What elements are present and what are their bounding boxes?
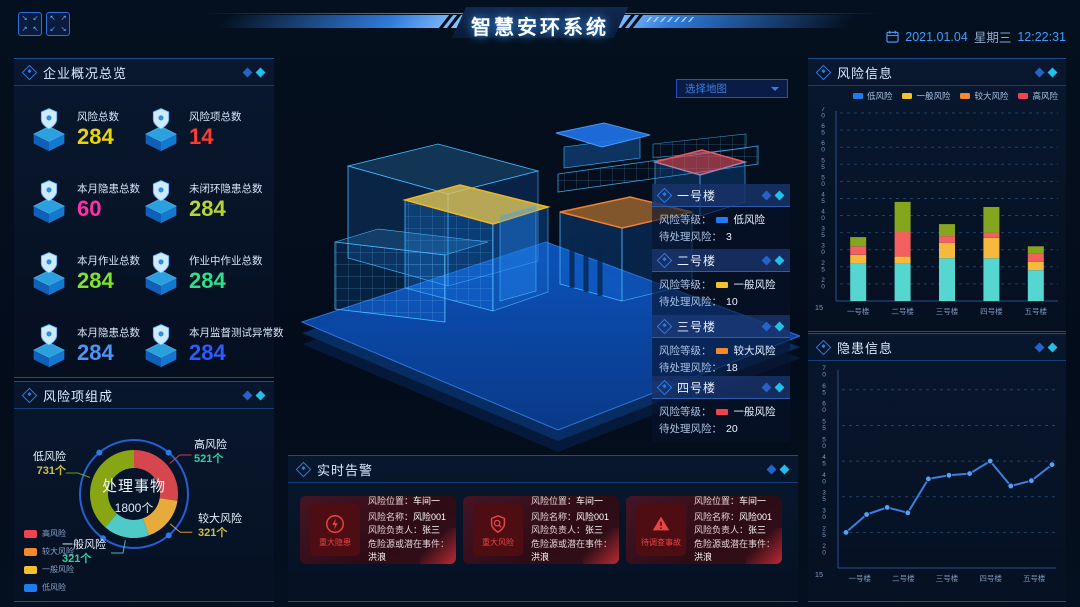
- risk-level-label: 风险等级：: [659, 277, 712, 292]
- stat-value: 284: [189, 270, 263, 292]
- svg-text:20: 20: [821, 277, 825, 291]
- pending-risk-label: 待处理风险：: [659, 421, 722, 436]
- building-card-1[interactable]: 一号楼 风险等级：低风险 待处理风险：3: [652, 184, 790, 250]
- building-card-body: 风险等级：较大风险 待处理风险：18: [652, 338, 790, 381]
- stat-card: 风险总数284: [28, 98, 140, 159]
- stat-card: 作业中作业总数284: [140, 242, 284, 303]
- panel-header: 隐患信息: [808, 334, 1066, 361]
- risk-level-swatch: [716, 348, 728, 354]
- alert-badge: 重大风险: [482, 537, 514, 548]
- legend-item[interactable]: 较大风险: [24, 546, 74, 557]
- building-card-header: 二号楼: [652, 249, 790, 272]
- svg-text:50: 50: [822, 436, 826, 450]
- panel-header: 实时告警: [288, 456, 798, 483]
- building-name: 二号楼: [677, 252, 716, 269]
- svg-text:40: 40: [821, 209, 825, 223]
- panel-title: 实时告警: [317, 460, 373, 479]
- legend-item[interactable]: 一般风险: [24, 564, 74, 575]
- svg-text:五号楼: 五号楼: [1025, 306, 1048, 316]
- diamond-icon: [657, 252, 673, 268]
- legend-swatch: [853, 93, 863, 99]
- svg-text:30: 30: [821, 243, 825, 257]
- callout-larger-risk: 较大风险 321个: [198, 512, 242, 540]
- calendar-icon: [886, 30, 899, 43]
- pending-risk-label: 待处理风险：: [659, 360, 722, 375]
- svg-text:20: 20: [822, 543, 826, 557]
- svg-text:五号楼: 五号楼: [1023, 573, 1046, 583]
- diamond-icon: [657, 379, 673, 395]
- dashboard-root: ↘↙ ↗↖ ↖↗ ↙↘ 智慧安环系统 2021.01.04 星期三 12:22:…: [0, 0, 1080, 607]
- stat-card: 未闭环隐患总数284: [140, 170, 284, 231]
- alert-icon-box: 重大隐患: [310, 504, 360, 556]
- alert-badge: 待调查事故: [641, 537, 681, 548]
- svg-text:60: 60: [822, 401, 826, 415]
- stat-value: 284: [77, 342, 140, 364]
- svg-text:四号楼: 四号楼: [979, 573, 1002, 583]
- callout-low-risk: 低风险 731个: [20, 450, 66, 478]
- building-name: 三号楼: [677, 318, 716, 335]
- svg-text:65: 65: [822, 383, 826, 397]
- panel-risk-composition: 风险项组成 处理事物 1800个 高风险 521个 低风险 731个 较大风险 …: [14, 381, 274, 602]
- building-card-header: 四号楼: [652, 376, 790, 399]
- legend-swatch: [24, 548, 37, 556]
- svg-text:一号楼: 一号楼: [847, 306, 870, 316]
- donut-center-label: 处理事物 1800个: [74, 475, 194, 516]
- header-diamonds-icon: [763, 384, 783, 391]
- cube-shield-icon: [140, 178, 182, 224]
- legend-swatch: [902, 93, 912, 99]
- legend-swatch: [24, 530, 37, 538]
- alert-badge: 重大隐患: [319, 537, 351, 548]
- svg-text:40: 40: [822, 472, 826, 486]
- stats-grid: 风险总数284 风险项总数14 本月隐患总数60 未闭环隐患总数284 本月作业…: [14, 86, 274, 375]
- panel-header: 风险信息: [808, 59, 1066, 86]
- svg-text:二号楼: 二号楼: [891, 306, 914, 316]
- stat-label: 风险项总数: [189, 109, 242, 124]
- stat-value: 14: [189, 126, 242, 148]
- map-select[interactable]: 选择地图: [676, 79, 788, 98]
- stat-label: 未闭环隐患总数: [189, 181, 263, 196]
- legend-item[interactable]: 高风险: [1018, 90, 1058, 102]
- stat-card: 本月隐患总数60: [28, 170, 140, 231]
- weekday-text: 星期三: [974, 27, 1012, 46]
- cube-shield-icon: [140, 106, 182, 152]
- risk-level-swatch: [716, 282, 728, 288]
- time-text: 12:22:31: [1017, 30, 1066, 44]
- svg-text:一号楼: 一号楼: [849, 573, 872, 583]
- diamond-icon: [657, 318, 673, 334]
- cube-shield-icon: [28, 250, 70, 296]
- building-card-body: 风险等级：一般风险 待处理风险：10: [652, 272, 790, 315]
- building-card-body: 风险等级：低风险 待处理风险：3: [652, 207, 790, 250]
- risk-stacked-bar-chart: 202530354045505560657015一号楼二号楼三号楼四号楼五号楼: [808, 107, 1066, 327]
- pending-risk-value: 3: [726, 231, 732, 243]
- svg-text:三号楼: 三号楼: [936, 306, 959, 316]
- header-diamonds-icon: [763, 257, 783, 264]
- legend-item[interactable]: 高风险: [24, 528, 74, 539]
- svg-text:50: 50: [821, 174, 825, 188]
- alert-card-1[interactable]: 重大隐患 风险位置：车间一 风险名称：风险001 风险负责人：张三 危险源或潜在…: [300, 496, 456, 564]
- svg-text:55: 55: [821, 157, 825, 171]
- stat-value: 60: [77, 198, 140, 220]
- legend-item[interactable]: 低风险: [853, 90, 893, 102]
- diamond-icon: [816, 339, 832, 355]
- panel-enterprise-overview: 企业概况总览 风险总数284 风险项总数14 本月隐患总数60 未闭环隐患总数2…: [14, 58, 274, 378]
- panel-title: 风险信息: [837, 63, 893, 82]
- building-card-body: 风险等级：一般风险 待处理风险：20: [652, 399, 790, 442]
- building-card-header: 三号楼: [652, 315, 790, 338]
- diamond-icon: [296, 461, 312, 477]
- panel-header: 企业概况总览: [14, 59, 274, 86]
- header-diamonds-icon: [1036, 344, 1056, 351]
- alert-card-2[interactable]: 重大风险 风险位置：车间一 风险名称：风险001 风险负责人：张三 危险源或潜在…: [463, 496, 619, 564]
- alert-rows: 风险位置：车间一 风险名称：风险001 风险负责人：张三 危险源或潜在事件：洪浪: [368, 496, 456, 564]
- warning-triangle-icon: [650, 513, 672, 535]
- diamond-icon: [22, 64, 38, 80]
- donut-center-title: 处理事物: [74, 475, 194, 496]
- svg-text:二号楼: 二号楼: [892, 573, 915, 583]
- stat-label: 作业中作业总数: [189, 253, 263, 268]
- header-diamonds-icon: [768, 466, 788, 473]
- svg-text:35: 35: [821, 226, 825, 240]
- header-diamonds-icon: [1036, 69, 1056, 76]
- stat-card: 本月隐患总数284: [28, 314, 140, 375]
- stat-card: 本月作业总数284: [28, 242, 140, 303]
- alert-card-3[interactable]: 待调查事故 风险位置：车间一 风险名称：风险001 风险负责人：张三 危险源或潜…: [626, 496, 782, 564]
- chevron-down-icon: [771, 87, 779, 91]
- pending-risk-label: 待处理风险：: [659, 229, 722, 244]
- danger-line-chart: 202530354045505560657015一号楼二号楼三号楼四号楼五号楼: [808, 360, 1066, 601]
- building-card-2[interactable]: 二号楼 风险等级：一般风险 待处理风险：10: [652, 249, 790, 315]
- risk-level-swatch: [716, 409, 728, 415]
- header-diamonds-icon: [763, 192, 783, 199]
- legend-item[interactable]: 低风险: [24, 582, 74, 593]
- svg-text:70: 70: [821, 107, 825, 120]
- cube-shield-icon: [140, 322, 182, 368]
- cube-shield-icon: [28, 178, 70, 224]
- svg-text:25: 25: [821, 260, 825, 274]
- risk-level-label: 风险等级：: [659, 212, 712, 227]
- date-text: 2021.01.04: [905, 30, 968, 44]
- shield-scan-icon: [487, 513, 509, 535]
- stat-label: 本月监督测试异常数: [189, 325, 284, 340]
- panel-risk-info: 风险信息 低风险 一般风险 较大风险 高风险 20253035404550556…: [808, 58, 1066, 332]
- risk-level-label: 风险等级：: [659, 343, 712, 358]
- svg-text:70: 70: [822, 365, 826, 379]
- building-card-3[interactable]: 三号楼 风险等级：较大风险 待处理风险：18: [652, 315, 790, 381]
- panel-title: 企业概况总览: [43, 63, 127, 82]
- svg-text:四号楼: 四号楼: [980, 306, 1003, 316]
- building-name: 四号楼: [677, 379, 716, 396]
- donut-legend: 高风险 较大风险 一般风险 低风险: [24, 528, 74, 593]
- svg-text:35: 35: [822, 490, 826, 504]
- stat-label: 本月隐患总数: [77, 181, 140, 196]
- alert-rows: 风险位置：车间一 风险名称：风险001 风险负责人：张三 危险源或潜在事件：洪浪: [694, 496, 782, 564]
- svg-text:25: 25: [822, 525, 826, 539]
- stat-card: 本月监督测试异常数284: [140, 314, 284, 375]
- building-card-header: 一号楼: [652, 184, 790, 207]
- legend-swatch: [1018, 93, 1028, 99]
- alert-icon-box: 待调查事故: [636, 504, 686, 556]
- datetime-bar: 2021.01.04 星期三 12:22:31: [886, 27, 1066, 46]
- legend-swatch: [960, 93, 970, 99]
- pending-risk-value: 10: [726, 296, 738, 308]
- legend-swatch: [24, 566, 37, 574]
- panel-realtime-alerts: 实时告警 重大隐患 风险位置：车间一 风险名称：风险001 风险负责人：张三 危…: [288, 455, 798, 602]
- svg-text:15: 15: [815, 303, 823, 312]
- legend-item[interactable]: 一般风险: [902, 90, 950, 102]
- header-diamonds-icon: [244, 69, 264, 76]
- stat-label: 本月作业总数: [77, 253, 140, 268]
- stat-value: 284: [189, 198, 263, 220]
- donut-center-value: 1800个: [74, 499, 194, 516]
- legend-item[interactable]: 较大风险: [960, 90, 1008, 102]
- lightning-circle-icon: [324, 513, 346, 535]
- callout-high-risk: 高风险 521个: [194, 438, 227, 466]
- panel-title: 隐患信息: [837, 338, 893, 357]
- pending-risk-value: 20: [726, 423, 738, 435]
- alert-rows: 风险位置：车间一 风险名称：风险001 风险负责人：张三 危险源或潜在事件：洪浪: [531, 496, 619, 564]
- svg-text:45: 45: [822, 454, 826, 468]
- stat-value: 284: [189, 342, 284, 364]
- map-select-value: 选择地图: [685, 81, 727, 96]
- building-card-4[interactable]: 四号楼 风险等级：一般风险 待处理风险：20: [652, 376, 790, 442]
- building-name: 一号楼: [677, 187, 716, 204]
- cube-shield-icon: [28, 106, 70, 152]
- stat-value: 284: [77, 270, 140, 292]
- svg-text:30: 30: [822, 508, 826, 522]
- pending-risk-value: 18: [726, 362, 738, 374]
- stat-label: 本月隐患总数: [77, 325, 140, 340]
- diamond-icon: [657, 187, 673, 203]
- svg-text:60: 60: [821, 140, 825, 154]
- risk-level-label: 风险等级：: [659, 404, 712, 419]
- bar-chart-legend: 低风险 一般风险 较大风险 高风险: [853, 90, 1058, 102]
- panel-danger-info: 隐患信息 202530354045505560657015一号楼二号楼三号楼四号…: [808, 333, 1066, 602]
- cube-shield-icon: [28, 322, 70, 368]
- risk-level-value: 一般风险: [734, 404, 776, 419]
- legend-swatch: [24, 584, 37, 592]
- header-diamonds-icon: [763, 323, 783, 330]
- risk-level-value: 一般风险: [734, 277, 776, 292]
- svg-text:15: 15: [815, 570, 823, 579]
- stat-value: 284: [77, 126, 119, 148]
- pending-risk-label: 待处理风险：: [659, 294, 722, 309]
- svg-text:55: 55: [822, 418, 826, 432]
- svg-text:45: 45: [821, 191, 825, 205]
- risk-level-swatch: [716, 217, 728, 223]
- diamond-icon: [816, 64, 832, 80]
- svg-text:65: 65: [821, 123, 825, 137]
- svg-text:三号楼: 三号楼: [936, 573, 959, 583]
- stat-label: 风险总数: [77, 109, 119, 124]
- cube-shield-icon: [140, 250, 182, 296]
- stat-card: 风险项总数14: [140, 98, 284, 159]
- alert-icon-box: 重大风险: [473, 504, 523, 556]
- risk-level-value: 较大风险: [734, 343, 776, 358]
- risk-level-value: 低风险: [734, 212, 766, 227]
